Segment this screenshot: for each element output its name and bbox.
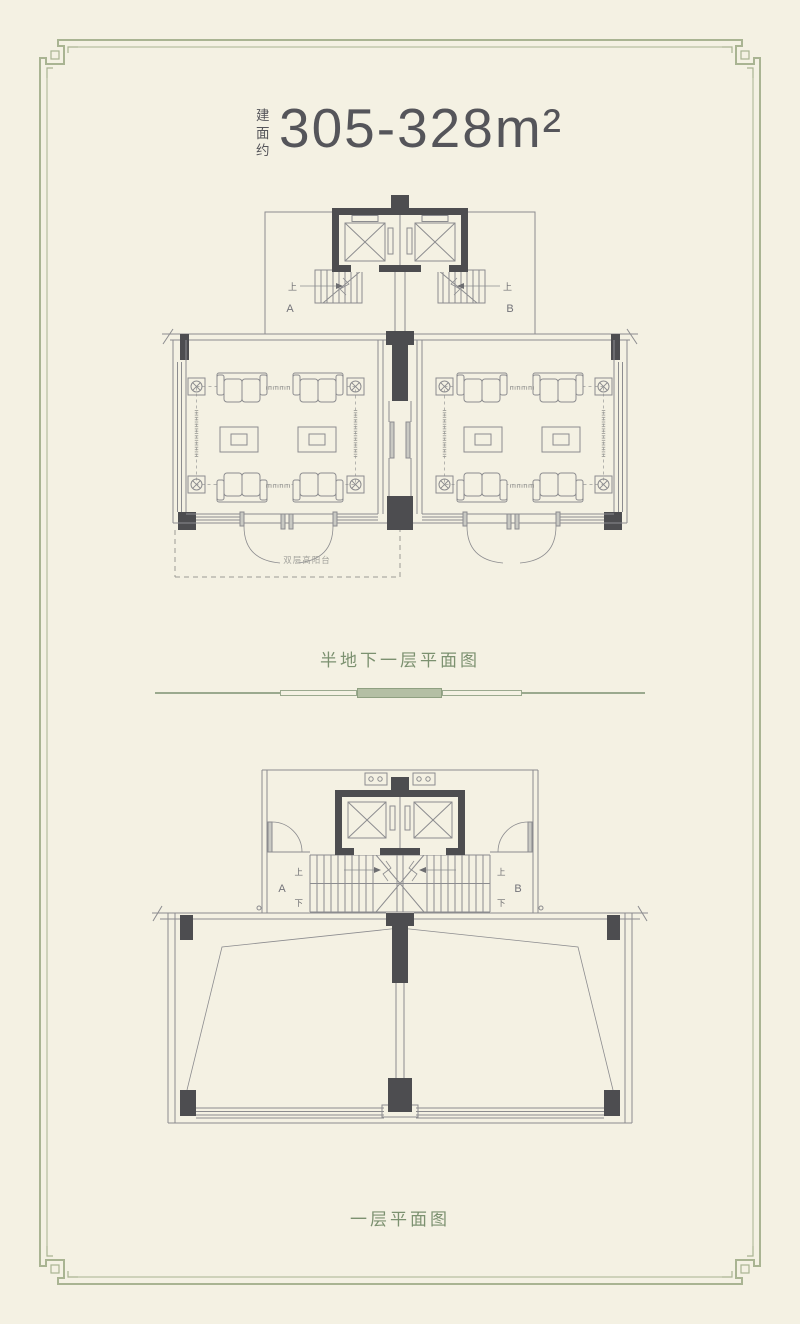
- unit-a-label: A: [286, 303, 294, 315]
- stair-up-label-right: 上: [497, 867, 506, 877]
- center-door-leaf: [390, 422, 394, 458]
- unit-b-label: B: [514, 883, 521, 895]
- stair-up-label-left: 上: [294, 867, 303, 877]
- void-sight-line: [187, 928, 400, 1090]
- first-floor-plan-caption: 一层平面图: [0, 1205, 800, 1230]
- stair-up-label-left: 上: [288, 282, 297, 292]
- balcony-label: 双层高阳台: [283, 555, 331, 565]
- stair-down-label-right: 下: [497, 898, 506, 908]
- door-swing-arc: [272, 822, 302, 852]
- area-title: 建面约 305-328m²: [256, 100, 563, 160]
- basement-plan-caption: 半地下一层平面图: [0, 646, 800, 671]
- divider-capsule-left: [280, 690, 357, 696]
- balcony-outline: [175, 530, 400, 577]
- basement-floor-plan: 双层高阳台 A B 上 上: [140, 186, 670, 596]
- stair-flight: [300, 270, 362, 303]
- area-value-label: 305-328m²: [279, 100, 563, 158]
- elevator-core: [335, 773, 465, 855]
- area-prefix-label: 建面约: [256, 107, 272, 160]
- stair-down-label-left: 下: [294, 898, 303, 908]
- unit-a-label: A: [278, 883, 286, 895]
- divider-capsule-right: [442, 690, 522, 696]
- center-wall-columns: [382, 913, 418, 1117]
- floorplan-brochure-page: { "header": { "area_prefix": "建面约", "are…: [0, 0, 800, 1324]
- first-floor-plan: A B 上 上 下 下: [140, 760, 670, 1140]
- stair-up-label-right: 上: [503, 282, 512, 292]
- elevator-core: [332, 195, 468, 272]
- section-divider: [155, 688, 645, 698]
- unit-b-label: B: [506, 303, 513, 315]
- door-leaf: [268, 822, 272, 852]
- divider-center-bar: [357, 688, 442, 698]
- door-swing-arc: [244, 526, 280, 563]
